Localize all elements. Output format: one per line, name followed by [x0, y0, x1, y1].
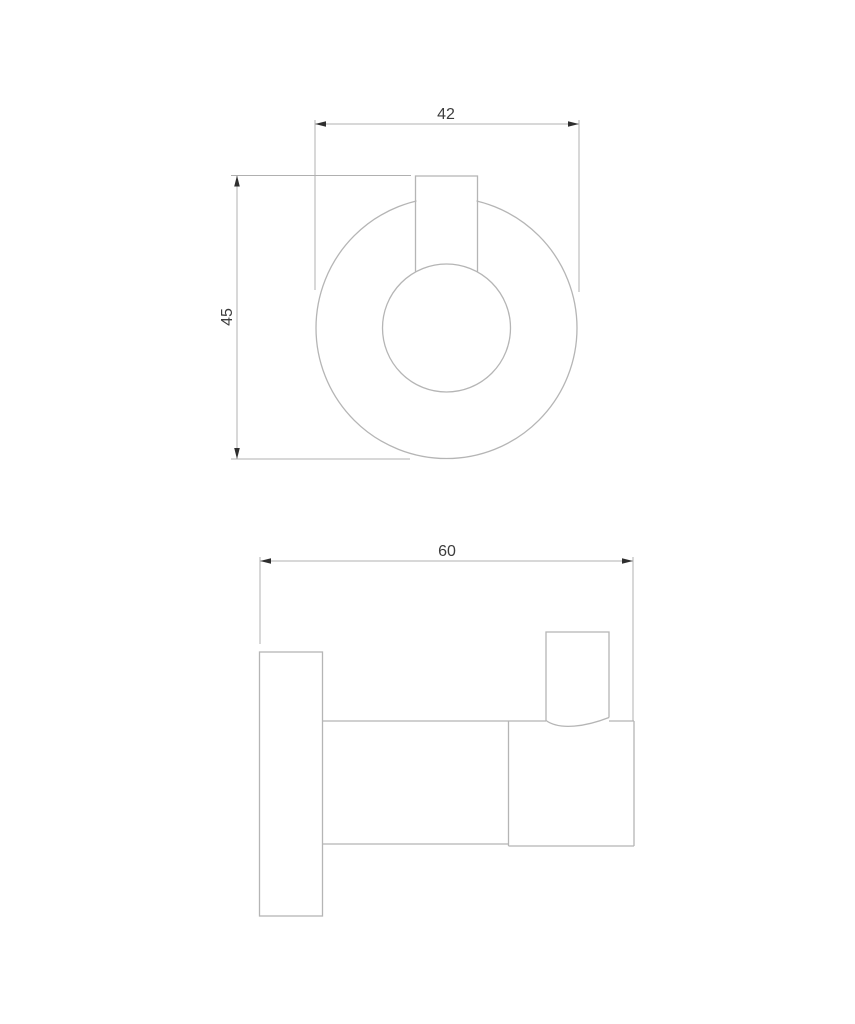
dim-arrow-right-icon [622, 558, 633, 564]
dimension-label-42: 42 [437, 106, 455, 123]
dim-arrow-left-icon [260, 558, 271, 564]
hook-tip-fillet-arc [546, 718, 609, 727]
front-view [316, 176, 577, 459]
dimension-label-60: 60 [438, 543, 456, 560]
dim-arrow-down-icon [234, 448, 240, 459]
dim-arrow-right-icon [568, 121, 579, 127]
technical-drawing-page: 42 45 6 [0, 0, 855, 1024]
dim-arrow-left-icon [315, 121, 326, 127]
technical-drawing-svg: 42 45 6 [0, 0, 855, 1024]
wall-plate [260, 652, 323, 916]
inner-circle [383, 264, 511, 392]
hook-tip-outline [546, 632, 609, 721]
side-view [260, 632, 635, 916]
tab-arc-cover [417, 177, 477, 261]
dimension-label-45: 45 [219, 308, 236, 326]
dim-arrow-up-icon [234, 176, 240, 187]
